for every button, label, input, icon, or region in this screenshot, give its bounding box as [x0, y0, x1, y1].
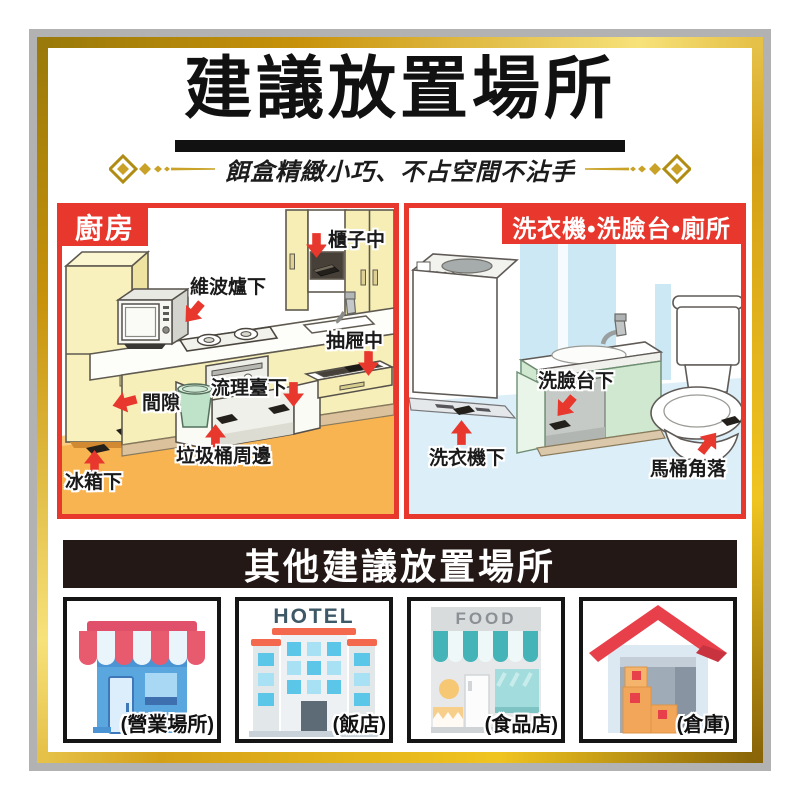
- trash-bin: [178, 384, 212, 427]
- bathroom-panel: 洗臉台下 洗衣機下 馬桶角落 洗衣機•洗臉台•廁所: [404, 203, 746, 519]
- washing-machine: [413, 254, 517, 398]
- label-under-washer: 洗衣機下: [429, 449, 505, 470]
- label-around-trash: 垃圾桶周邊: [176, 447, 271, 468]
- red-arrow-icon: [451, 420, 472, 445]
- label-toilet-corner: 馬桶角落: [650, 460, 726, 481]
- label-gap: 間隙: [142, 394, 180, 415]
- page-title: 建議放置場所: [0, 50, 800, 128]
- other-location-label: (營業場所): [121, 708, 214, 737]
- label-in-cabinet: 櫃子中: [328, 231, 385, 252]
- hotel-sign-text: HOTEL: [273, 605, 354, 628]
- other-location-label: (飯店): [333, 708, 386, 737]
- other-location-warehouse: (倉庫): [579, 597, 737, 743]
- gold-ornament-icon: [585, 154, 691, 184]
- subtitle-text: 餌盒精緻小巧、不占空間不沾手: [225, 152, 575, 187]
- label-under-fridge: 冰箱下: [65, 473, 122, 494]
- subtitle-row: 餌盒精緻小巧、不占空間不沾手: [48, 150, 752, 188]
- food-sign-text: FOOD: [455, 609, 516, 628]
- label-in-drawer: 抽屜中: [326, 332, 383, 353]
- microwave: [118, 289, 188, 349]
- other-location-hotel: HOTEL (飯店): [235, 597, 393, 743]
- other-location-label: (倉庫): [677, 708, 730, 737]
- label-under-microwave: 維波爐下: [190, 278, 266, 299]
- other-location-storefront: (營業場所): [63, 597, 221, 743]
- bathroom-badge: 洗衣機•洗臉台•廁所: [502, 208, 741, 244]
- red-arrow-icon: [358, 351, 379, 376]
- other-location-label: (食品店): [485, 708, 558, 737]
- other-location-food-store: FOOD (食品店): [407, 597, 565, 743]
- other-section-header: 其他建議放置場所: [63, 540, 737, 588]
- kitchen-panel: 櫃子中 維波爐下 抽屜中 流理臺下 間隙 垃圾桶周邊 冰箱下 廚房: [57, 203, 399, 519]
- label-under-counter: 流理臺下: [211, 379, 287, 400]
- poster-root: 建議放置場所 餌盒精緻小巧、不占空間不沾手: [0, 0, 800, 800]
- red-arrow-icon: [306, 233, 327, 258]
- kitchen-illustration: [62, 208, 394, 514]
- kitchen-badge: 廚房: [62, 208, 148, 246]
- label-under-basin: 洗臉台下: [538, 372, 614, 393]
- gold-ornament-icon: [109, 154, 215, 184]
